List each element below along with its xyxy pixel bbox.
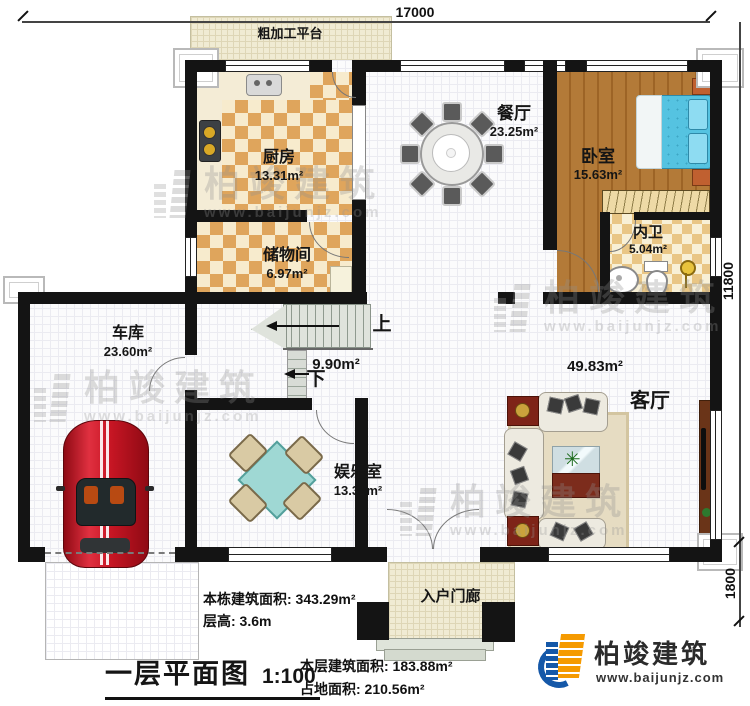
porch-pillar [482, 602, 515, 642]
sofa-pillow [547, 397, 565, 415]
garage-label: 车库23.60m² [88, 325, 168, 359]
driveway [45, 562, 199, 660]
brand-logo: 柏竣建筑 www.baijunjz.com [538, 630, 743, 696]
sofa-pillow [583, 398, 601, 416]
dimension-right-label: 11800 [720, 262, 736, 300]
wall [185, 398, 312, 410]
window [710, 410, 722, 540]
stove-burner [203, 126, 216, 139]
building-area-text: 本栋建筑面积: 343.29m² [203, 589, 355, 609]
porch-step [384, 649, 486, 661]
living-area-label: 49.83m² [555, 358, 635, 376]
bathroom-sink-drain [616, 275, 622, 281]
wall [505, 60, 524, 72]
wall [18, 292, 367, 304]
porch-label: 入户门廊 [398, 588, 503, 606]
window [225, 60, 310, 72]
wall [310, 60, 332, 72]
column [498, 292, 515, 304]
dining-chair [442, 186, 462, 206]
brand-logo-building-orange [555, 634, 585, 678]
dining-label: 餐厅23.25m² [474, 104, 554, 139]
floor-height-text: 层高: 3.6m [203, 611, 271, 631]
shower-symbol [680, 260, 696, 276]
living-label: 客厅 [615, 390, 685, 414]
kitchen-faucet [266, 80, 272, 86]
wall [352, 200, 366, 292]
dimension-line-right [739, 22, 741, 627]
car-rear-glass [80, 538, 130, 553]
storage-appliance [330, 266, 352, 294]
brand-name: 柏竣建筑 [594, 634, 710, 671]
land-area-text: 占地面积: 210.56m² [300, 679, 424, 699]
car-seat [110, 486, 124, 504]
garage-door-line [45, 552, 175, 554]
bathroom-sink [605, 266, 639, 294]
nightstand [692, 169, 712, 186]
tv-screen [701, 428, 706, 490]
bathroom-label: 内卫5.04m² [608, 224, 688, 256]
stairs-down-label: 下 [300, 369, 332, 391]
stairs-down-arrow [284, 369, 295, 379]
kitchen-label: 厨房13.31m² [239, 149, 319, 183]
wall [670, 547, 722, 562]
dining-chair [484, 144, 504, 164]
stairs-up-label: 上 [368, 314, 396, 336]
bed-pillow [688, 133, 708, 164]
wall [197, 210, 307, 222]
brand-website: www.baijunjz.com [596, 670, 724, 685]
stairs-up-arrow-line [277, 325, 339, 327]
wall [543, 292, 710, 304]
table-lamp [515, 403, 530, 418]
sliding-door [352, 105, 366, 200]
table-plant: ✳ [564, 450, 581, 470]
bed-sheet [636, 95, 662, 169]
dining-table-center [446, 148, 456, 158]
window [548, 547, 670, 562]
kitchen-sink [246, 74, 282, 96]
kitchen-faucet [254, 80, 260, 86]
dimension-tick [17, 10, 28, 21]
wall [480, 547, 548, 562]
window [400, 60, 505, 72]
wall [710, 60, 722, 237]
bedroom-label: 卧室15.63m² [558, 147, 638, 182]
car-mirror [145, 486, 154, 491]
dimension-porch-label: 1800 [722, 568, 738, 599]
entertainment-label: 娱乐室13.31m² [318, 464, 398, 498]
stove-burner [203, 143, 216, 156]
window [586, 60, 688, 72]
platform-label: 粗加工平台 [190, 26, 390, 41]
wall [543, 60, 557, 250]
car-mirror [56, 486, 65, 491]
table-lamp [515, 523, 530, 538]
wall [566, 60, 586, 72]
wall [634, 212, 710, 220]
wall [185, 304, 197, 355]
coffee-table-base [552, 473, 600, 498]
car-seat [84, 486, 98, 504]
dining-chair [442, 102, 462, 122]
wall [175, 547, 200, 562]
window [228, 547, 332, 562]
wall [185, 390, 197, 562]
sofa-bottom [538, 518, 606, 550]
bed-pillow [688, 99, 708, 130]
wall [18, 292, 30, 562]
porch-pillar [357, 602, 389, 640]
storage-label: 储物间6.97m² [247, 247, 327, 281]
sofa-pillow [511, 491, 529, 509]
wardrobe [602, 190, 710, 214]
floor-plan-canvas: ✳ [0, 0, 750, 706]
shower-symbol-stem [685, 273, 687, 288]
dimension-tick [705, 10, 716, 21]
stairs-up-arrow [266, 321, 277, 331]
window [185, 237, 197, 277]
wall [200, 547, 228, 562]
dining-chair [400, 144, 420, 164]
dimension-line-top [22, 21, 710, 23]
dimension-top-label: 17000 [355, 4, 475, 20]
wall [185, 60, 197, 237]
brand-logo-building-blue [546, 642, 558, 680]
wall [18, 547, 45, 562]
wall [332, 547, 387, 562]
